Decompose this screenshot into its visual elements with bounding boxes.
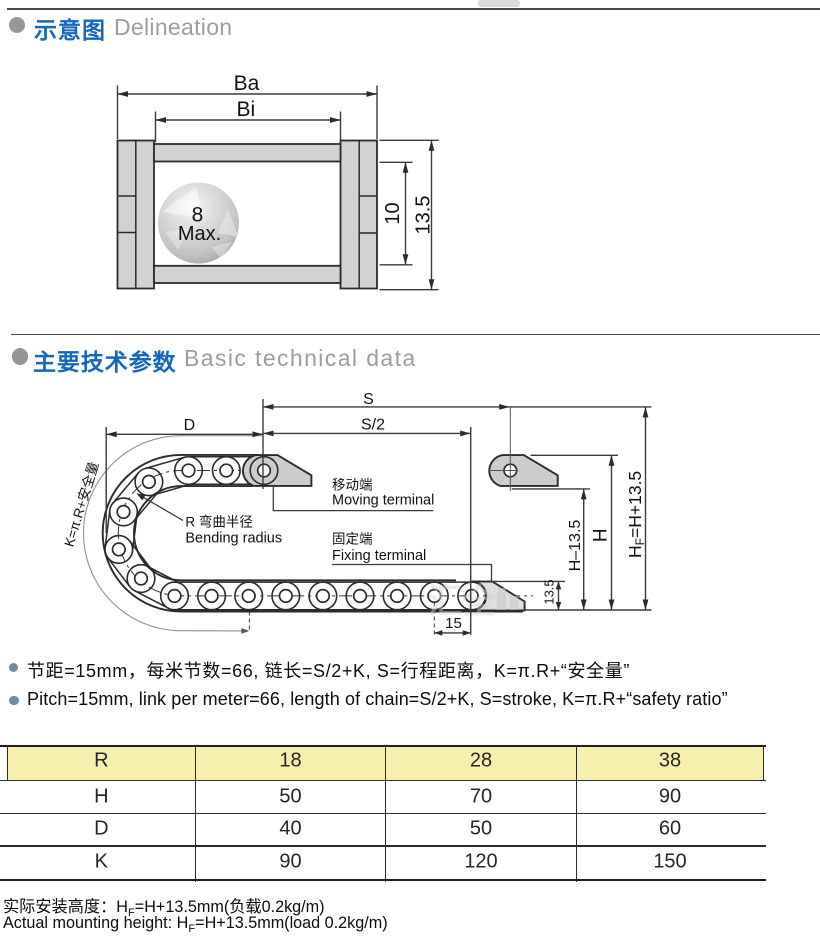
svg-text:S: S xyxy=(363,391,374,408)
svg-text:H: H xyxy=(591,528,612,542)
svg-text:HF=H+13.5: HF=H+13.5 xyxy=(625,471,647,558)
svg-text:Ba: Ba xyxy=(234,72,260,95)
svg-text:15: 15 xyxy=(445,615,462,632)
svg-text:移动端: 移动端 xyxy=(332,478,373,493)
svg-text:D: D xyxy=(184,417,196,434)
svg-text:R 弯曲半径: R 弯曲半径 xyxy=(185,514,253,530)
svg-text:10: 10 xyxy=(382,202,404,224)
svg-text:固定端: 固定端 xyxy=(332,532,373,547)
svg-text:Bi: Bi xyxy=(236,98,255,121)
svg-text:汇全: 汇全 xyxy=(428,582,497,621)
svg-text:Fixing terminal: Fixing terminal xyxy=(332,548,426,564)
svg-text:H–13.5: H–13.5 xyxy=(567,520,584,572)
svg-text:S/2: S/2 xyxy=(361,417,385,434)
svg-text:Moving terminal: Moving terminal xyxy=(332,493,434,509)
svg-text:Max.: Max. xyxy=(178,223,221,245)
svg-text:13.5: 13.5 xyxy=(413,196,435,235)
svg-text:Bending radius: Bending radius xyxy=(185,530,282,546)
svg-text:K=π.R+安全量: K=π.R+安全量 xyxy=(61,460,102,549)
svg-text:13.5: 13.5 xyxy=(542,579,557,604)
